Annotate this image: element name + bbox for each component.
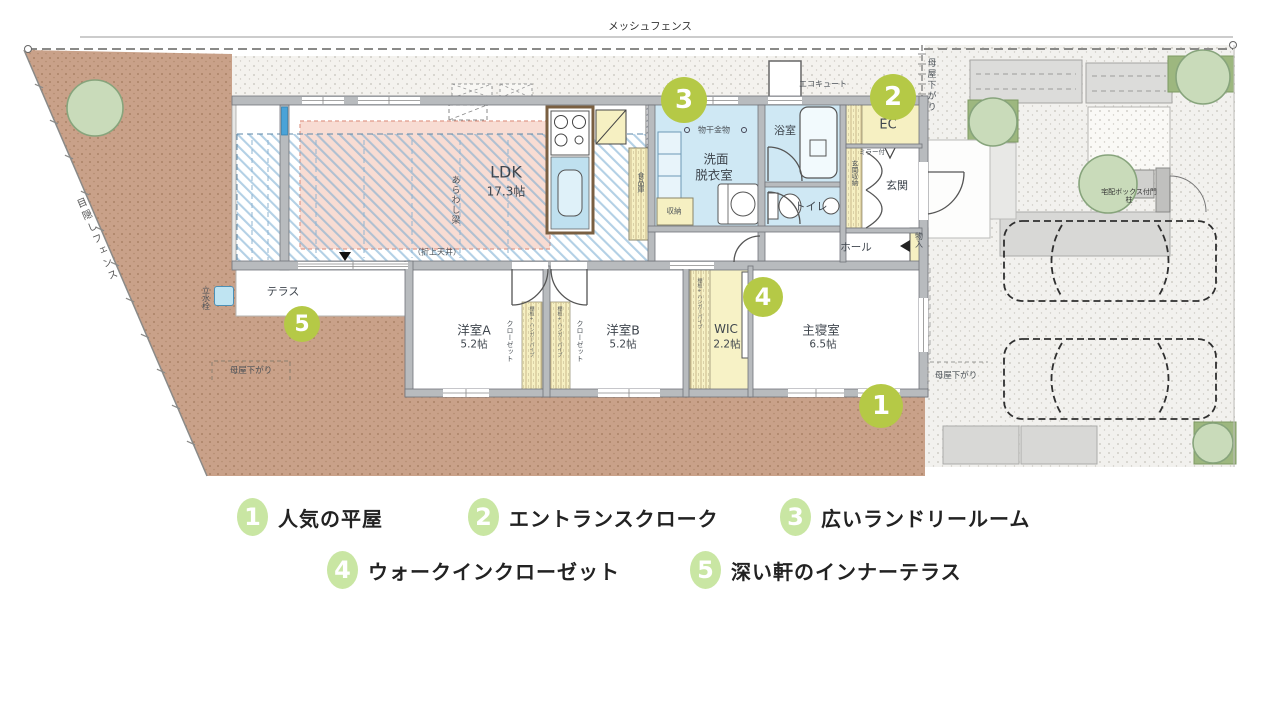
room-b-closet-label: クローゼット: [575, 320, 585, 362]
monohoshi-note: 物干金物: [698, 125, 730, 136]
genkan-storage-label: 玄関収納: [849, 160, 859, 186]
wic-name: WIC: [714, 322, 738, 336]
legend-label-1: 人気の平屋: [278, 503, 383, 532]
monoire-label: 物入: [914, 232, 925, 248]
master-size: 6.5帖: [809, 337, 836, 352]
ldk-beam-note: あらわし梁: [449, 175, 462, 225]
legend-circle-2: 2: [468, 498, 499, 536]
moya-sagari-bottom-left: 母屋下がり: [230, 364, 273, 376]
marker-3: 3: [661, 77, 707, 123]
wic-size: 2.2帖: [713, 337, 740, 352]
shuno-label: 収納: [667, 206, 682, 217]
legend-item-1: 1 人気の平屋: [237, 498, 383, 536]
mirror-note: ミラー付: [859, 146, 885, 156]
legend-circle-1: 1: [237, 498, 268, 536]
legend-item-3: 3 広いランドリールーム: [780, 498, 1030, 536]
genkan-label: 玄関: [886, 177, 908, 193]
legend-circle-4: 4: [327, 551, 358, 589]
terrace-label: テラス: [267, 283, 300, 299]
ldk-name: LDK: [490, 163, 522, 182]
room-a-size: 5.2帖: [460, 337, 487, 352]
legend-item-2: 2 エントランスクローク: [468, 498, 719, 536]
fence-top-label: メッシュフェンス: [608, 19, 692, 34]
toilet-label: トイレ: [795, 198, 828, 214]
legend-label-2: エントランスクローク: [509, 503, 719, 532]
legend-circle-3: 3: [780, 498, 811, 536]
ldk-size: 17.3帖: [487, 183, 526, 200]
kitchen-counter: [547, 107, 593, 233]
washer-icon: [718, 184, 758, 224]
tap-label: 立水栓: [201, 286, 212, 310]
room-b-shelf-note: 棚板+ハンガーパイプ: [557, 306, 564, 357]
wic-shelf-note: 棚板+ハンガーパイプ: [697, 278, 704, 329]
washroom-label-2: 脱衣室: [695, 165, 733, 184]
pantry-label: 食品庫: [636, 172, 646, 193]
tap-icon: [214, 286, 234, 306]
marker-2: 2: [870, 74, 916, 120]
bath-label: 浴室: [774, 122, 796, 138]
legend-circle-5: 5: [690, 551, 721, 589]
legend-label-3: 広いランドリールーム: [821, 503, 1030, 532]
room-a-closet-label: クローゼット: [505, 320, 515, 362]
bathtub-icon: [800, 107, 837, 178]
legend-item-4: 4 ウォークインクローゼット: [327, 551, 620, 589]
gate-post-label: 宅配ボックス付門柱: [1100, 188, 1158, 205]
ecocute-label: エコキュート: [799, 79, 847, 90]
floorplan-drawing: [0, 0, 1280, 540]
legend-item-5: 5 深い軒のインナーテラス: [690, 551, 962, 589]
moya-sagari-top-right: 母屋下がり: [925, 58, 938, 113]
marker-4: 4: [743, 277, 783, 317]
ldk-ceiling-note: （折上天井）: [413, 247, 461, 258]
room-a-shelf-note: 棚板+ハンガーパイプ: [529, 306, 536, 357]
hall-label: ホール: [840, 240, 872, 255]
room-b-size: 5.2帖: [609, 337, 636, 352]
legend-label-5: 深い軒のインナーテラス: [731, 556, 962, 585]
moya-sagari-bottom-right: 母屋下がり: [935, 369, 978, 381]
marker-5: 5: [284, 306, 320, 342]
marker-1: 1: [859, 384, 903, 428]
legend-label-4: ウォークインクローゼット: [368, 556, 620, 585]
floorplan-page: メッシュフェンス 目隠しフェンス LDK 17.3帖 あらわし梁 （折上天井） …: [0, 0, 1280, 720]
